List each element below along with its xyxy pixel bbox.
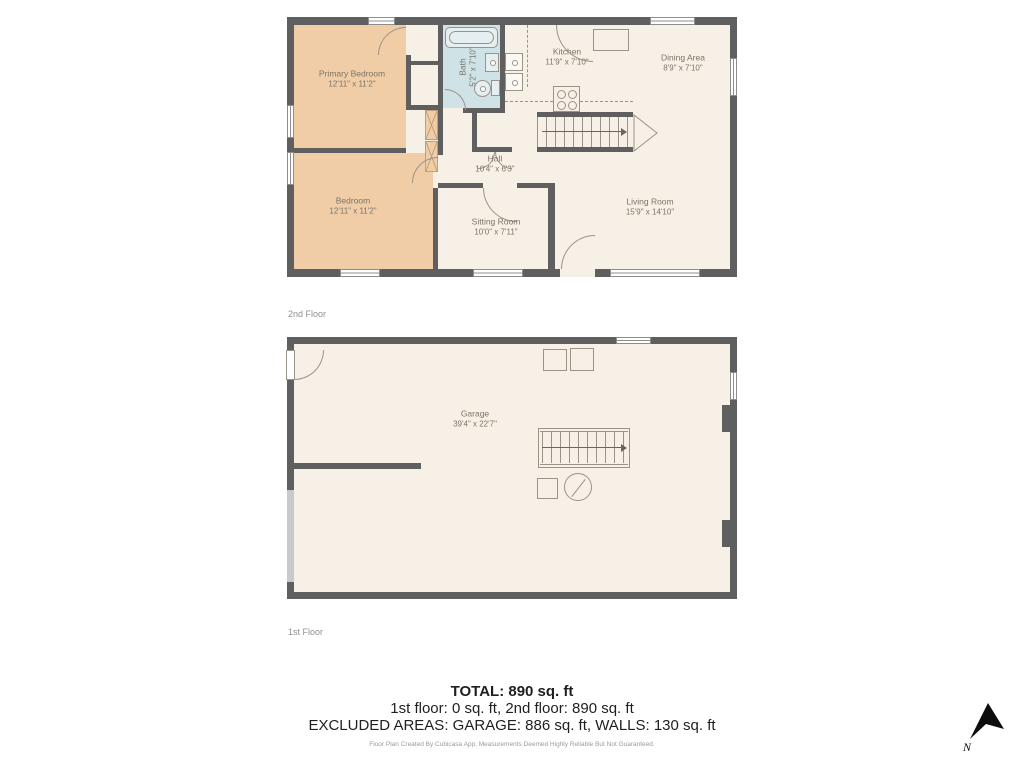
wall — [472, 112, 477, 152]
room-name: Hall — [475, 153, 514, 164]
excluded-areas: EXCLUDED AREAS: GARAGE: 886 sq. ft, WALL… — [0, 717, 1024, 734]
room-label-bedroom: Bedroom 12'11" x 11'2" — [329, 195, 376, 216]
stove — [553, 86, 580, 112]
sink-drain — [512, 80, 518, 86]
kitchen-sink-cabinet — [505, 53, 523, 71]
wall — [438, 25, 443, 155]
room-name: Kitchen — [545, 46, 588, 57]
stair-end-chevron — [633, 114, 659, 152]
wall — [411, 61, 438, 65]
room-label-hall: Hall 10'4" x 6'3" — [475, 153, 514, 174]
window — [650, 17, 695, 25]
floor-label-2nd: 2nd Floor — [288, 309, 326, 319]
window — [730, 372, 737, 400]
window — [616, 337, 651, 344]
stair-rail — [540, 431, 628, 432]
room-label-primary-bedroom: Primary Bedroom 12'11" x 11'2" — [319, 68, 385, 89]
window — [287, 105, 294, 138]
room-label-bath: Bath 5'2" x 7'10" — [457, 47, 478, 86]
room-name: Bath — [457, 47, 468, 86]
utility-cabinet — [537, 478, 558, 499]
wall — [537, 147, 633, 152]
room-dims: 8'9" x 7'10" — [661, 63, 705, 73]
dryer — [570, 348, 594, 371]
floor-plan-page: Primary Bedroom 12'11" x 11'2" Bath 5'2"… — [0, 0, 1024, 768]
room-dims: 11'9" x 7'10" — [545, 57, 588, 67]
room-label-sitting: Sitting Room 10'0" x 7'11" — [472, 216, 521, 237]
kitchen-sink-cabinet — [505, 73, 523, 91]
disclaimer: Floor Plan Created By Cubicasa App. Meas… — [0, 741, 1024, 748]
room-label-dining: Dining Area 8'9" x 7'10" — [661, 52, 705, 73]
toilet-tank — [491, 80, 500, 96]
room-label-kitchen: Kitchen 11'9" x 7'10" — [545, 46, 588, 67]
room-dims: 12'11" x 11'2" — [319, 79, 385, 89]
window — [473, 269, 523, 277]
room-dims: 15'9" x 14'10" — [626, 207, 674, 217]
area-summary: TOTAL: 890 sq. ft 1st floor: 0 sq. ft, 2… — [0, 683, 1024, 748]
floor-label-1st: 1st Floor — [288, 627, 323, 637]
bedroom-closet — [425, 110, 438, 140]
floor-areas: 1st floor: 0 sq. ft, 2nd floor: 890 sq. … — [0, 700, 1024, 717]
window — [368, 17, 395, 25]
burner — [557, 101, 566, 110]
room-dims: 12'11" x 11'2" — [329, 206, 376, 216]
burner — [568, 90, 577, 99]
wall — [287, 17, 294, 277]
window — [730, 58, 737, 96]
wall — [433, 188, 438, 269]
bathroom-sink — [485, 53, 499, 72]
room-name: Primary Bedroom — [319, 68, 385, 79]
sink-drain — [512, 60, 518, 66]
toilet-dot — [480, 86, 486, 92]
door-arc — [294, 350, 324, 380]
wall-light-segment — [287, 490, 294, 582]
north-label: N — [962, 740, 972, 754]
bathtub-basin — [449, 31, 494, 44]
water-heater-slash — [571, 479, 585, 497]
room-name: Living Room — [626, 196, 674, 207]
room-name: Dining Area — [661, 52, 705, 63]
washer — [543, 349, 567, 371]
stair-direction-line — [542, 447, 622, 448]
window — [610, 269, 700, 277]
kitchen-counter — [593, 29, 629, 51]
first-floor-plan: Garage 39'4" x 22'7" — [287, 337, 737, 599]
burner — [557, 90, 566, 99]
room-label-living: Living Room 15'9" x 14'10" — [626, 196, 674, 217]
room-name: Garage — [453, 408, 497, 419]
door-arc — [561, 235, 595, 269]
second-floor-plan: Primary Bedroom 12'11" x 11'2" Bath 5'2"… — [287, 17, 737, 277]
stair-direction-arrow — [621, 444, 627, 452]
wall-pier — [722, 520, 737, 547]
room-label-garage: Garage 39'4" x 22'7" — [453, 408, 497, 429]
window — [287, 152, 294, 185]
sink-drain — [490, 60, 496, 66]
burner — [568, 101, 577, 110]
wall — [294, 463, 421, 469]
wall-pier — [722, 405, 737, 432]
room-dims: 5'2" x 7'10" — [468, 47, 478, 86]
wall — [463, 108, 505, 113]
wall — [548, 183, 555, 269]
counter-edge — [527, 25, 528, 87]
bathtub — [445, 27, 498, 48]
staircase — [537, 117, 633, 147]
window — [340, 269, 380, 277]
room-name: Bedroom — [329, 195, 376, 206]
wall — [294, 148, 406, 153]
total-area: TOTAL: 890 sq. ft — [0, 683, 1024, 700]
stair-rail — [540, 464, 628, 465]
wall — [287, 337, 737, 344]
room-name: Sitting Room — [472, 216, 521, 227]
wall — [287, 592, 737, 599]
wall — [730, 17, 737, 277]
room-dims: 10'4" x 6'3" — [475, 164, 514, 174]
room-dims: 39'4" x 22'7" — [453, 419, 497, 429]
water-heater — [564, 473, 592, 501]
stair-direction-arrow — [621, 128, 627, 136]
room-dims: 10'0" x 7'11" — [472, 227, 521, 237]
north-arrow-icon: N — [955, 698, 1013, 758]
stair-direction-line — [542, 131, 622, 132]
wall — [438, 183, 483, 188]
